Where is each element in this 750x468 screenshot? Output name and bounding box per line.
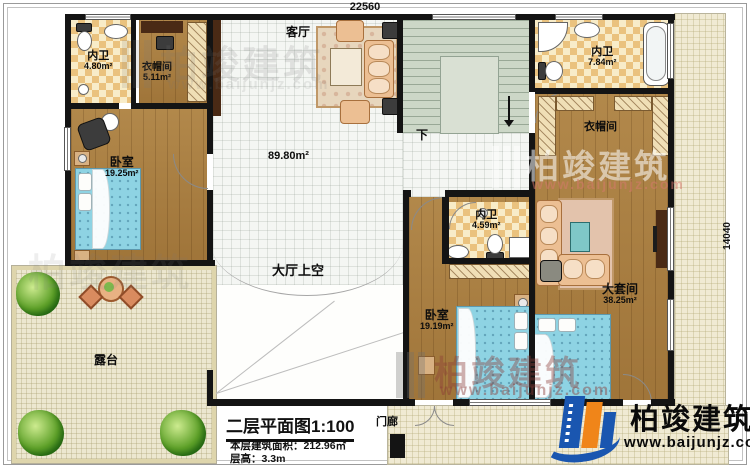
room-name: 衣帽间 — [584, 121, 617, 133]
floor-drain — [78, 84, 89, 95]
stair-arrow-head — [504, 120, 514, 127]
pillow — [558, 318, 576, 332]
stair-arrow-line — [508, 96, 510, 122]
armchair — [336, 20, 364, 42]
porch-pillar — [390, 434, 405, 458]
washbasin — [104, 24, 128, 39]
washbasin — [447, 245, 469, 259]
floor-plan-canvas: 22560 14040 — [0, 0, 750, 468]
wall — [445, 190, 529, 197]
room-area: 38.25m² — [602, 296, 638, 306]
room-area: 89.80m² — [268, 150, 309, 162]
room-label-closet1: 衣帽间 5.11m² — [142, 62, 172, 83]
sofa-cushion — [540, 227, 558, 245]
window — [433, 15, 515, 19]
toilet — [487, 234, 503, 254]
room-label-bedroom1: 卧室 19.25m² — [105, 156, 139, 179]
wall — [207, 14, 213, 154]
pillow — [78, 173, 92, 191]
wall — [131, 20, 136, 103]
bed-sheet-fold — [92, 169, 110, 249]
wall — [403, 190, 411, 197]
wall — [207, 190, 213, 266]
room-name: 露台 — [94, 354, 118, 367]
room-area: 19.25m² — [105, 169, 139, 179]
wardrobe — [538, 96, 556, 156]
bath-cabinet — [509, 237, 530, 258]
dimension-top: 22560 — [330, 1, 400, 13]
wardrobe — [187, 22, 207, 102]
brand-name: 柏竣建筑 — [630, 396, 750, 438]
hall-tile-floor-lower — [403, 133, 529, 197]
bed-sheet-fold — [534, 334, 554, 398]
room-name: 客厅 — [286, 26, 310, 39]
window — [556, 15, 602, 19]
window — [668, 24, 673, 78]
window — [86, 15, 130, 19]
nightstand-knob — [78, 154, 87, 163]
wall — [213, 399, 415, 406]
room-area: 4.80m² — [84, 62, 113, 72]
room-name: 下 — [416, 129, 428, 142]
wall — [397, 14, 403, 133]
room-label-void: 大厅上空 — [272, 264, 324, 278]
wall — [529, 133, 535, 400]
room-area: 19.19m² — [420, 322, 454, 332]
wall — [71, 103, 119, 109]
side-table — [540, 260, 562, 282]
wall — [131, 103, 207, 109]
sofa-cushion — [540, 205, 558, 223]
bedroom2-wardrobe — [449, 264, 531, 279]
brand-logo — [540, 392, 626, 464]
sofa-cushion — [368, 61, 390, 77]
wall — [403, 197, 409, 400]
nightstand — [418, 356, 435, 375]
room-label-bedroom2: 卧室 19.19m² — [420, 309, 454, 332]
tall-cabinet — [213, 20, 221, 116]
coffee-table — [330, 48, 362, 86]
hall-area-label: 89.80m² — [268, 150, 309, 162]
tree — [160, 410, 206, 456]
room-label-bath2: 内卫 7.84m² — [588, 46, 617, 68]
pillow — [514, 332, 528, 350]
window — [668, 300, 673, 350]
tv-screen — [653, 226, 657, 252]
armchair — [340, 100, 370, 124]
bathtub-inner — [646, 26, 666, 81]
pillow — [538, 318, 556, 332]
toilet — [77, 31, 92, 51]
room-label-terrace: 露台 — [94, 354, 118, 367]
room-area: 7.84m² — [588, 58, 617, 68]
tree — [18, 410, 64, 456]
room-area: 5.11m² — [142, 73, 172, 83]
sofa-cushion — [368, 44, 390, 60]
sofa-cushion — [585, 259, 605, 279]
stairs-down-label: 下 — [416, 129, 428, 142]
room-name: 门廊 — [376, 416, 398, 428]
pillow — [514, 312, 528, 330]
brand-website: www.baijunjz.com — [624, 434, 750, 451]
room-label-porch: 门廊 — [376, 416, 398, 428]
tv-cabinet — [656, 210, 668, 268]
stair-landing — [440, 56, 499, 134]
window — [65, 128, 70, 170]
wall — [529, 14, 535, 92]
dimension-right: 14040 — [722, 222, 733, 250]
room-label-master: 大套间 38.25m² — [602, 283, 638, 306]
sofa-cushion — [368, 78, 390, 94]
wall — [442, 197, 449, 258]
window — [470, 400, 550, 405]
room-label-bath1: 内卫 4.80m² — [84, 50, 113, 72]
wardrobe — [556, 96, 594, 111]
room-label-living: 客厅 — [286, 26, 310, 39]
wall — [442, 258, 530, 264]
stool — [156, 36, 174, 50]
room-label-closet2: 衣帽间 — [584, 121, 617, 133]
window — [668, 208, 673, 270]
tree — [16, 272, 60, 316]
room-area: 4.59m² — [472, 221, 501, 231]
coffee-table — [570, 222, 590, 252]
bed-sheet-fold — [458, 308, 476, 398]
plan-floor-height-line: 层高：3.3m — [230, 451, 285, 466]
room-label-bath3: 内卫 4.59m² — [472, 209, 501, 231]
outdoor-table-plant — [104, 282, 114, 292]
sofa-cushion — [563, 259, 583, 279]
washbasin — [574, 22, 600, 38]
toilet — [545, 61, 563, 81]
pillow — [78, 193, 92, 211]
wall — [535, 88, 668, 94]
wardrobe — [614, 96, 652, 111]
wall — [65, 260, 215, 266]
room-name: 大厅上空 — [272, 264, 324, 278]
cabinet — [141, 21, 183, 33]
